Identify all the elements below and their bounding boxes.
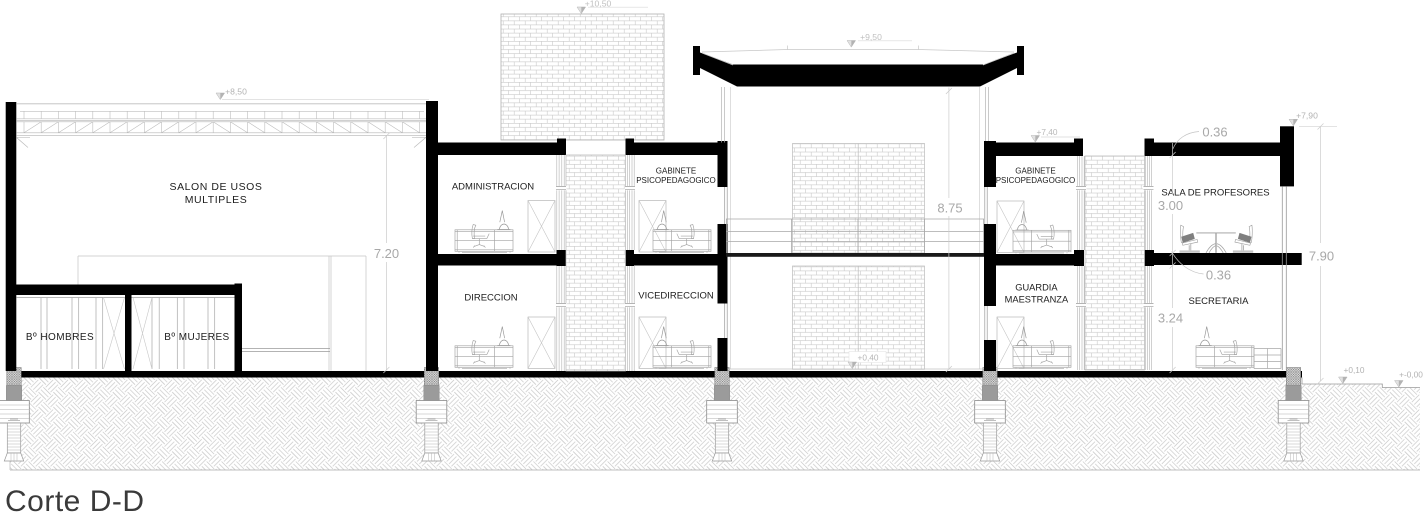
svg-text:SALON DE USOS: SALON DE USOS bbox=[170, 181, 263, 193]
svg-text:GABINETE: GABINETE bbox=[656, 167, 696, 176]
svg-text:+10,50: +10,50 bbox=[585, 0, 612, 9]
svg-text:DIRECCION: DIRECCION bbox=[464, 293, 517, 304]
svg-text:PSICOPEDAGOGICO: PSICOPEDAGOGICO bbox=[996, 176, 1076, 185]
svg-text:7.20: 7.20 bbox=[374, 246, 399, 261]
svg-text:+7,40: +7,40 bbox=[1037, 127, 1058, 137]
svg-text:+7,90: +7,90 bbox=[1296, 111, 1318, 121]
svg-text:+-0,00: +-0,00 bbox=[1399, 370, 1423, 380]
svg-text:+9,50: +9,50 bbox=[860, 32, 882, 42]
svg-text:+0,10: +0,10 bbox=[1344, 365, 1365, 375]
svg-text:SECRETARIA: SECRETARIA bbox=[1188, 296, 1249, 307]
svg-text:8.75: 8.75 bbox=[937, 201, 962, 216]
svg-text:3.24: 3.24 bbox=[1158, 311, 1183, 326]
svg-text:0.36: 0.36 bbox=[1206, 268, 1231, 283]
svg-text:Bº HOMBRES: Bº HOMBRES bbox=[26, 332, 94, 343]
svg-text:Bº MUJERES: Bº MUJERES bbox=[164, 332, 229, 343]
svg-text:0.36: 0.36 bbox=[1202, 125, 1227, 140]
svg-text:VICEDIRECCION: VICEDIRECCION bbox=[638, 291, 714, 302]
svg-text:3.00: 3.00 bbox=[1158, 198, 1183, 213]
svg-text:Corte D-D: Corte D-D bbox=[5, 485, 145, 515]
svg-text:7.90: 7.90 bbox=[1309, 249, 1334, 264]
svg-text:MAESTRANZA: MAESTRANZA bbox=[1005, 295, 1069, 305]
svg-text:SALA DE PROFESORES: SALA DE PROFESORES bbox=[1161, 188, 1269, 199]
svg-text:MULTIPLES: MULTIPLES bbox=[185, 194, 248, 206]
svg-text:GABINETE: GABINETE bbox=[1015, 167, 1055, 176]
svg-text:GUARDIA: GUARDIA bbox=[1015, 283, 1058, 293]
svg-text:+8,50: +8,50 bbox=[225, 87, 247, 97]
svg-text:+0,40: +0,40 bbox=[858, 353, 879, 363]
svg-text:PSICOPEDAGOGICO: PSICOPEDAGOGICO bbox=[636, 176, 716, 185]
svg-text:ADMINISTRACION: ADMINISTRACION bbox=[452, 182, 534, 193]
